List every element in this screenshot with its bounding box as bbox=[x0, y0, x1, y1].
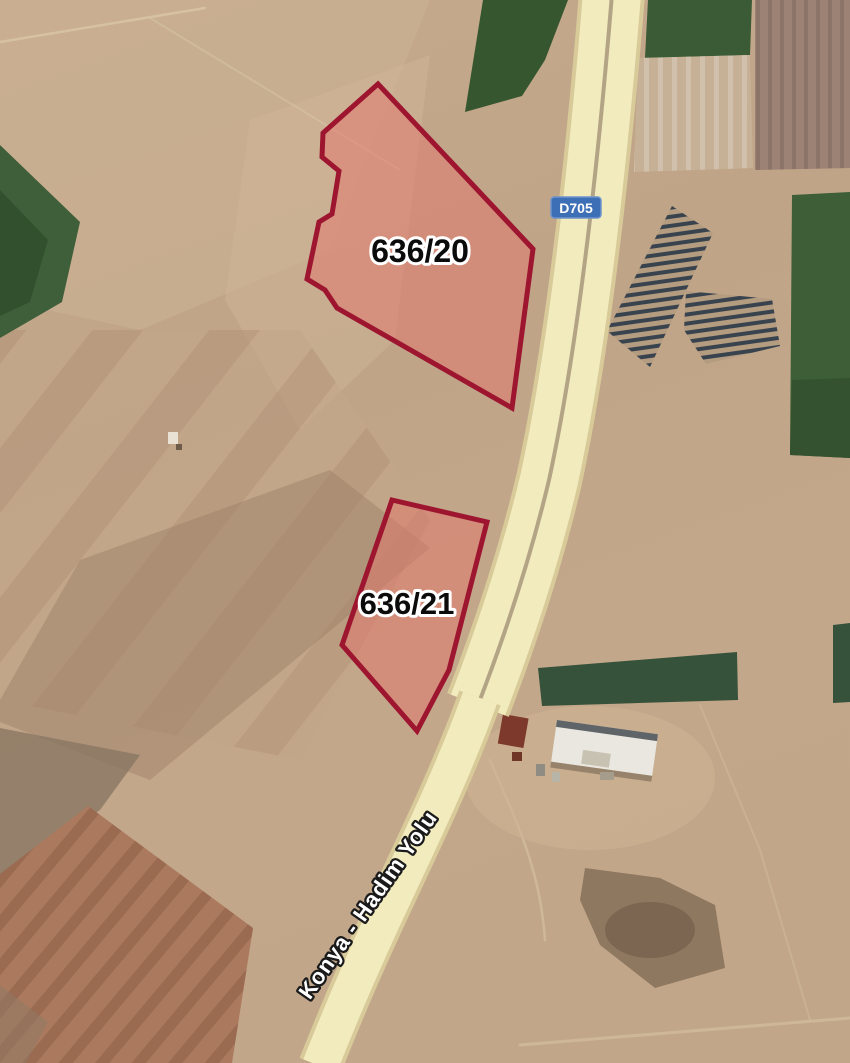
solar-farm bbox=[607, 206, 780, 367]
map-viewport[interactable]: 636/20 636/21 Konya - Hadim Yolu D705 bbox=[0, 0, 850, 1063]
parcel-label-636-20: 636/20 bbox=[371, 233, 469, 269]
road-shield-text: D705 bbox=[559, 200, 593, 216]
satellite-imagery-layer: 636/20 636/21 Konya - Hadim Yolu D705 bbox=[0, 0, 850, 1063]
road-shield-d705: D705 bbox=[551, 197, 601, 218]
parcel-label-636-21: 636/21 bbox=[360, 586, 455, 621]
farm-compound bbox=[465, 706, 715, 850]
small-red-building bbox=[498, 714, 529, 748]
